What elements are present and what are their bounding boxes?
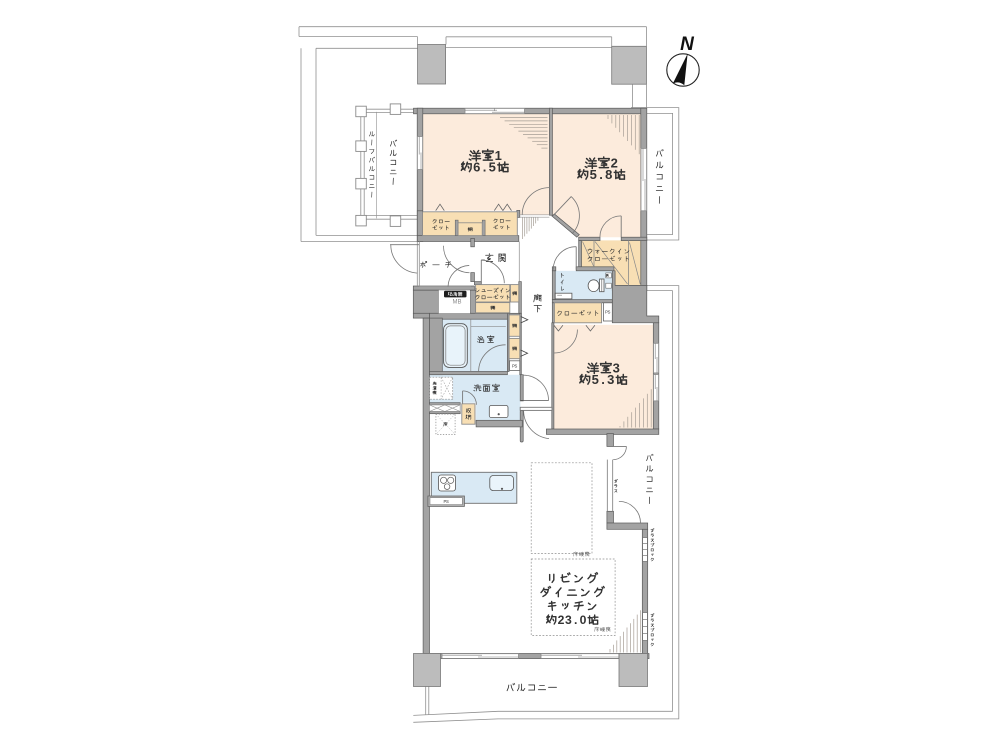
svg-text:3: 3 — [607, 372, 614, 387]
svg-text:S: S — [514, 363, 517, 368]
svg-text:0: 0 — [580, 613, 587, 627]
svg-text:S: S — [608, 309, 611, 314]
svg-text:.: . — [483, 160, 487, 175]
svg-text:2: 2 — [558, 613, 565, 627]
svg-text:6: 6 — [473, 160, 480, 175]
svg-text:8: 8 — [605, 167, 612, 182]
svg-text:3: 3 — [565, 613, 572, 627]
svg-text:.: . — [601, 372, 605, 387]
svg-text:.: . — [574, 613, 577, 627]
svg-text:5: 5 — [590, 167, 597, 182]
svg-text:5: 5 — [592, 372, 599, 387]
svg-text:MB: MB — [453, 299, 462, 305]
svg-text:S: S — [446, 499, 449, 504]
svg-text:.: . — [599, 167, 603, 182]
svg-text:5: 5 — [489, 160, 496, 175]
svg-text:N: N — [680, 34, 695, 55]
